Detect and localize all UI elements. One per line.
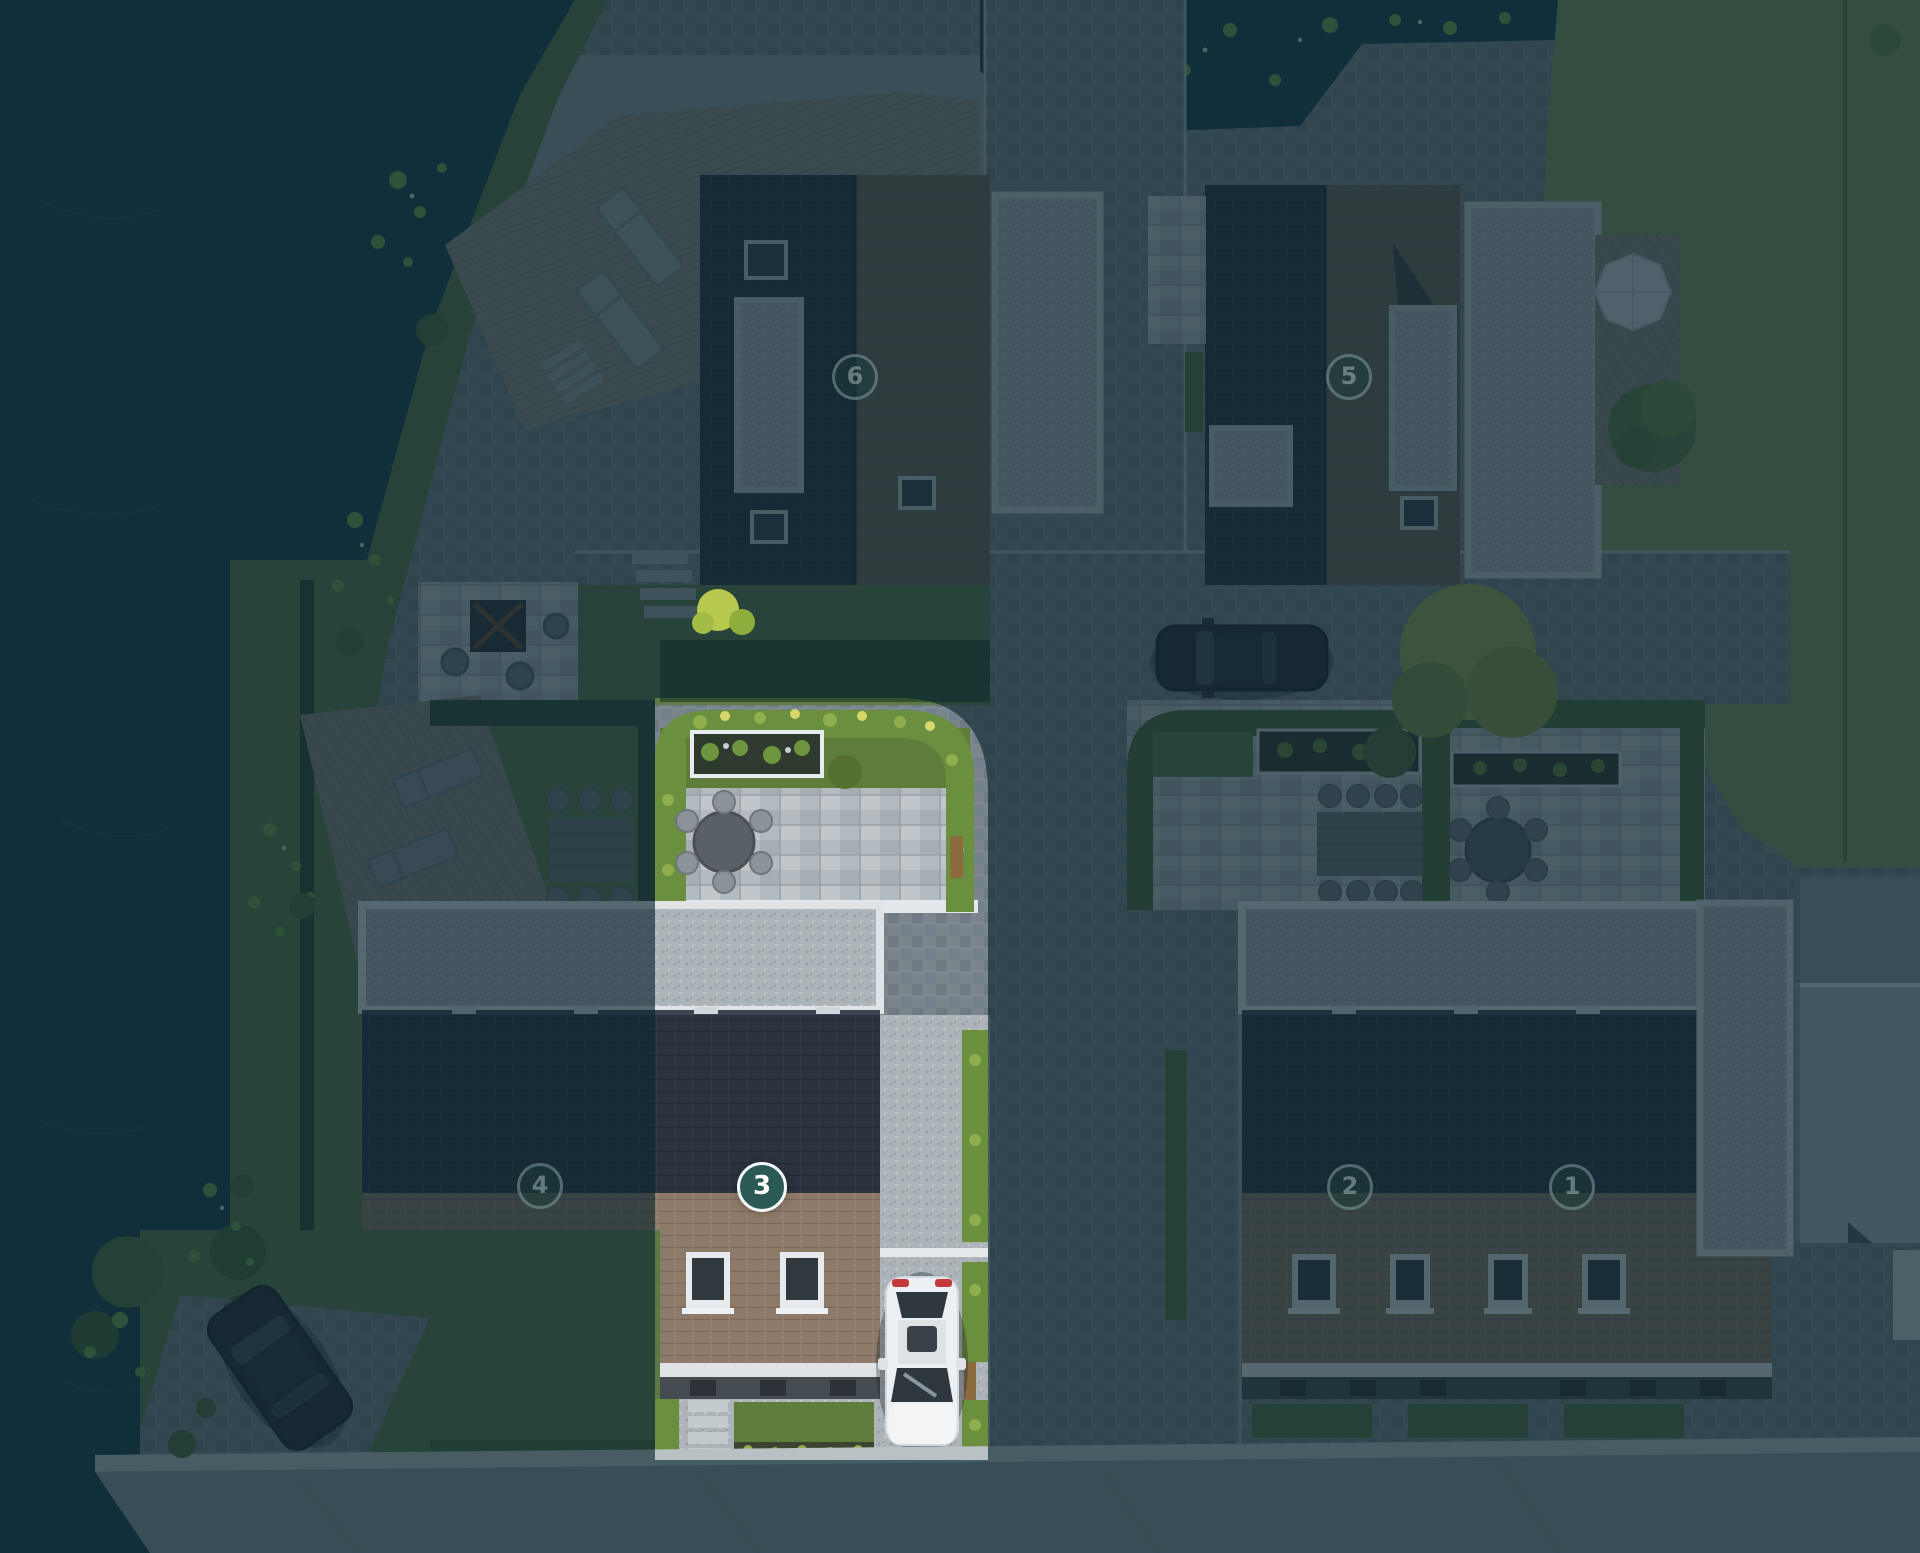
- plot-marker-label: 4: [532, 1173, 549, 1197]
- plot-marker-label: 5: [1341, 364, 1358, 388]
- plot-marker-5[interactable]: 5: [1326, 354, 1372, 400]
- plot-marker-2[interactable]: 2: [1327, 1164, 1373, 1210]
- plot-marker-6[interactable]: 6: [832, 354, 878, 400]
- site-plan-stage: 654321: [0, 0, 1920, 1553]
- plot-marker-label: 2: [1342, 1174, 1359, 1198]
- plot-marker-layer: 654321: [0, 0, 1920, 1553]
- plot-marker-label: 3: [753, 1173, 771, 1199]
- plot-marker-label: 1: [1564, 1174, 1581, 1198]
- plot-marker-4[interactable]: 4: [517, 1163, 563, 1209]
- plot-marker-1[interactable]: 1: [1549, 1164, 1595, 1210]
- plot-marker-3[interactable]: 3: [737, 1162, 787, 1212]
- plot-marker-label: 6: [847, 364, 864, 388]
